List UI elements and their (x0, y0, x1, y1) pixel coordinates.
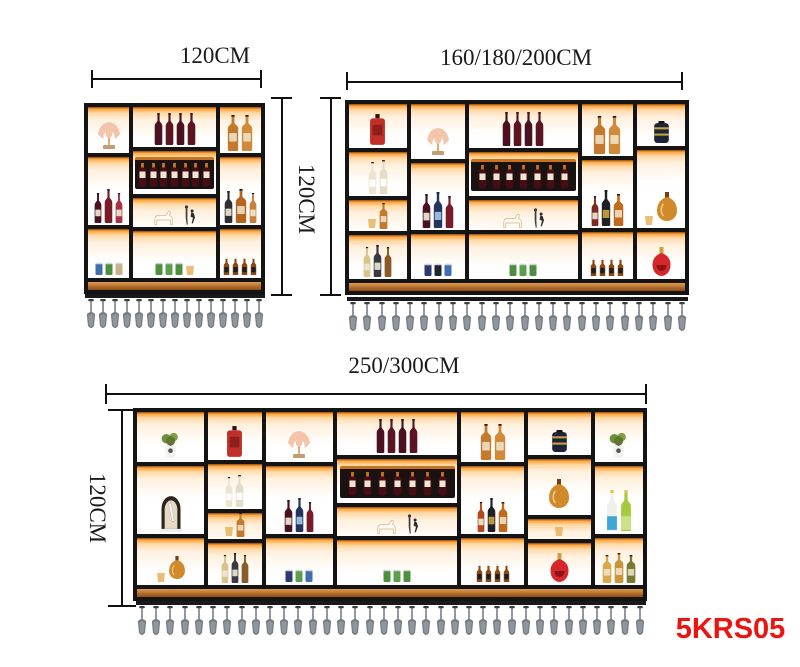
shelf-cell (637, 104, 685, 146)
wine-bottle-icon (115, 193, 123, 223)
wine-glass-icon (321, 606, 333, 644)
wine-glass-icon (361, 302, 373, 340)
wine-glass-icon (662, 302, 674, 340)
wine-bottle-icon (445, 196, 454, 228)
shelf-cell (469, 152, 578, 196)
wine-bottle-icon (513, 112, 522, 146)
shelf-cell (461, 538, 524, 585)
wine-glass-icon (477, 606, 489, 644)
wine-glass-icon (619, 606, 631, 644)
beer-bottle-icon (476, 564, 483, 583)
wine-glass-icon (217, 299, 229, 337)
red-decanter-icon (651, 247, 672, 277)
shelf-cell (411, 234, 465, 279)
shelf-cell (469, 200, 578, 230)
shelf-unit-160-180-200cm (345, 100, 689, 295)
wine-glass-icon (205, 299, 217, 337)
horse-figurine-icon (376, 516, 404, 534)
red-decanter-icon (549, 553, 570, 583)
wine-glass-icon (207, 606, 219, 644)
wine-bottle-icon (224, 191, 233, 223)
glass-cup-icon (156, 573, 166, 583)
people-figurines-icon (532, 208, 545, 228)
wine-bottle-icon (241, 555, 249, 583)
wine-glass-icon (404, 302, 416, 340)
rack-bottle-icon (159, 163, 168, 187)
brandy-bottle-icon (480, 424, 492, 460)
wine-bottle-icon (384, 247, 392, 277)
dome-display-icon (158, 494, 184, 532)
wine-bottle-icon (176, 113, 185, 145)
dimension-tick (681, 72, 683, 90)
wine-glass-icon (406, 606, 418, 644)
wine-glass-icon (634, 606, 646, 644)
wine-glass-icon (548, 606, 560, 644)
wine-bottle-icon (502, 112, 511, 146)
shelf-column (266, 412, 333, 585)
wine-glass-icon (164, 606, 176, 644)
rack-bottle-icon (492, 165, 501, 189)
shelf-cell (88, 229, 129, 278)
wine-glass-icon (676, 302, 688, 340)
wine-glass-icon (591, 606, 603, 644)
shelf-cell (220, 229, 261, 278)
rack-bottle-icon (138, 163, 147, 187)
shelf-cell (133, 107, 216, 147)
wine-glass-icon (605, 606, 617, 644)
wine-glass-icon (253, 299, 265, 337)
dimension-tick (105, 384, 107, 404)
shelf-cell (595, 466, 643, 535)
wood-base (137, 589, 643, 597)
people-figurines-icon (183, 205, 196, 225)
wine-glass-icon (433, 302, 445, 340)
rack-bottle-icon (363, 472, 372, 496)
wine-bottle-icon (422, 194, 431, 228)
shelf-cell (337, 412, 458, 455)
wine-bottle-icon (368, 162, 377, 194)
wine-glass-icon (461, 302, 473, 340)
shelf-column (469, 104, 578, 279)
wine-bottle-icon (373, 245, 382, 277)
brandy-bottle-icon (613, 194, 624, 226)
red-square-bottle-icon (369, 114, 386, 146)
beer-bottle-icon (250, 257, 257, 276)
can-icon (165, 262, 173, 276)
potted-plant-icon (607, 432, 630, 460)
shelf-cell (88, 107, 129, 153)
shelf-cell (208, 513, 261, 539)
canister-icon (551, 430, 568, 453)
shelf-cell (337, 540, 458, 585)
wine-glass-icon (364, 606, 376, 644)
wine-glass-icon (193, 606, 205, 644)
shelf-cell (411, 104, 465, 159)
wine-glass-icon (520, 606, 532, 644)
people-figurines-icon (406, 514, 419, 534)
shelf-cell (528, 459, 591, 515)
unit2-width-label: 160/180/200CM (431, 45, 601, 71)
wine-glass-icon (349, 606, 361, 644)
shelf-cell (349, 235, 407, 279)
wine-bottle-icon (387, 419, 396, 453)
wine-glass-icon (136, 606, 148, 644)
rack-bottle-icon (393, 472, 402, 496)
can-icon (105, 262, 113, 276)
coral-decor-icon (424, 127, 452, 157)
shelf-cell (528, 519, 591, 539)
wine-glass-icon (435, 606, 447, 644)
shelf-column (220, 107, 261, 278)
brandy-bottle-icon (614, 553, 624, 583)
dimension-cap (320, 294, 341, 296)
wine-glass-icon (590, 302, 602, 340)
can-icon (95, 262, 103, 276)
shelf-cell (337, 459, 458, 502)
rack-bottle-icon (378, 472, 387, 496)
rack-bottle-icon (191, 163, 200, 187)
wine-glass-icon (563, 606, 575, 644)
wine-glass-icon (506, 606, 518, 644)
wine-glass-icon (519, 302, 531, 340)
horse-figurine-icon (153, 207, 181, 225)
shelf-cell (88, 157, 129, 225)
can-icon (305, 569, 313, 583)
wine-glass-icon (193, 299, 205, 337)
brandy-bottle-icon (241, 115, 253, 151)
wine-glass-icon (420, 606, 432, 644)
wine-glass-icon (179, 606, 191, 644)
rack-bottle-icon (423, 472, 432, 496)
wine-glass-icon (547, 302, 559, 340)
shelf-cell (595, 412, 643, 462)
wine-glass-icon (390, 302, 402, 340)
unit3-height-label: 120CM (84, 454, 110, 562)
shelf-cell (208, 412, 261, 460)
rack-bottle-icon (181, 163, 190, 187)
hanging-glass-rack (85, 294, 265, 344)
wine-glass-icon (221, 606, 233, 644)
wine-glass-icon (121, 299, 133, 337)
wine-display-rack (340, 466, 455, 498)
wine-bottle-icon (94, 193, 102, 223)
wine-bottle-icon (433, 192, 443, 228)
coral-decor-icon (95, 121, 123, 151)
wine-glass-icon (250, 606, 262, 644)
brandy-bottle-icon (379, 203, 388, 229)
can-icon (529, 263, 537, 277)
beer-bottle-icon (608, 258, 615, 277)
wine-glass-icon (533, 302, 545, 340)
wine-glass-icon (97, 299, 109, 337)
shelf-cell (137, 412, 204, 462)
rack-bottle-icon (348, 472, 357, 496)
coral-decor-icon (285, 430, 313, 460)
wine-bottle-icon (231, 553, 239, 583)
can-icon (383, 569, 391, 583)
beer-bottle-icon (590, 258, 597, 277)
unit1-width-label: 120CM (150, 43, 280, 69)
wine-glass-icon (392, 606, 404, 644)
product-dimension-diagram: 120CM 160/180/200CM 120CM 250/300CM 120C… (0, 0, 800, 667)
dimension-line (92, 78, 262, 80)
wood-base (349, 283, 685, 291)
shelf-column (133, 107, 216, 278)
shelf-column (337, 412, 458, 585)
wine-bottle-icon (165, 113, 174, 145)
canister-icon (653, 121, 670, 144)
wine-bottle-icon (187, 113, 196, 145)
shelf-cell (595, 538, 643, 585)
product-code: 5KRS05 (668, 613, 793, 646)
can-icon (285, 569, 293, 583)
wine-bottle-icon (235, 475, 244, 507)
wine-glass-icon (633, 302, 645, 340)
shelf-cell (637, 150, 685, 228)
wine-glass-icon (109, 299, 121, 337)
wine-glass-icon (577, 606, 589, 644)
shelf-cell (133, 198, 216, 227)
horse-figurine-icon (502, 210, 530, 228)
shelf-column (88, 107, 129, 278)
shelf-unit-250-300cm (133, 408, 647, 601)
potted-plant-icon (159, 432, 182, 460)
rack-bottle-icon (202, 163, 211, 187)
wine-glass-icon (145, 299, 157, 337)
wine-glass-icon (447, 302, 459, 340)
glass-rail (347, 297, 688, 301)
shelf-column (208, 412, 261, 585)
shelf-cell (582, 160, 633, 228)
wine-glass-icon (504, 302, 516, 340)
wine-glass-icon (604, 302, 616, 340)
shelf-cell (461, 412, 524, 462)
shelf-cell (208, 464, 261, 509)
rack-bottle-icon (170, 163, 179, 187)
wine-glass-icon (476, 302, 488, 340)
wine-glass-icon (292, 606, 304, 644)
shelf-column (582, 104, 633, 279)
wine-glass-icon (619, 302, 631, 340)
wine-glass-icon (490, 302, 502, 340)
shelf-cell (582, 232, 633, 279)
beer-bottle-icon (617, 258, 624, 277)
dimension-tick (260, 70, 262, 88)
shelf-cell (469, 234, 578, 279)
glass-rail (136, 601, 646, 605)
glass-cup-icon (367, 219, 377, 229)
wine-bottle-icon (104, 189, 113, 223)
units-height-label: 120CM (293, 145, 319, 253)
hanging-glass-rack (347, 297, 688, 347)
dimension-cap (320, 97, 341, 99)
wine-bottle-icon (487, 498, 496, 532)
cognac-decanter-icon (548, 479, 570, 513)
wine-bottle-icon (524, 112, 533, 146)
beer-bottle-icon (241, 257, 248, 276)
glass-cup-icon (644, 216, 654, 226)
wine-glass-icon (449, 606, 461, 644)
dimension-cap (271, 294, 292, 296)
tall-bottle-icon (606, 490, 618, 532)
dimension-tick (346, 72, 348, 90)
wine-bottle-icon (225, 477, 233, 507)
shelf-cell (133, 231, 216, 278)
wine-glass-icon (378, 606, 390, 644)
shelf-cell (266, 412, 333, 462)
brandy-bottle-icon (593, 116, 606, 154)
shelf-cell (528, 412, 591, 455)
shelf-cell (337, 507, 458, 537)
rack-bottle-icon (149, 163, 158, 187)
unit2-height-line (330, 98, 332, 296)
dimension-cap (271, 97, 292, 99)
rack-bottle-icon (438, 472, 447, 496)
rack-bottle-icon (546, 165, 555, 189)
brandy-bottle-icon (626, 555, 636, 583)
wine-glass-icon (491, 606, 503, 644)
dimension-tick (645, 384, 647, 404)
wine-glass-icon (335, 606, 347, 644)
wine-glass-icon (150, 606, 162, 644)
tall-bottle-icon (620, 490, 632, 532)
shelf-grid (349, 104, 685, 279)
wine-glass-icon (133, 299, 145, 337)
shelf-cell (220, 107, 261, 153)
rack-bottle-icon (408, 472, 417, 496)
dimension-line (347, 81, 683, 83)
shelf-cell (637, 232, 685, 279)
rack-bottle-icon (533, 165, 542, 189)
can-icon (115, 262, 123, 276)
shelf-column (595, 412, 643, 585)
wine-glass-icon (169, 299, 181, 337)
wine-bottle-icon (379, 160, 388, 194)
shelf-cell (582, 104, 633, 156)
glass-cup-icon (185, 266, 195, 276)
wine-glass-icon (85, 299, 97, 337)
dimension-cap (108, 605, 136, 607)
unit1-height-line (281, 98, 283, 296)
wine-glass-icon (463, 606, 475, 644)
wine-glass-icon (561, 302, 573, 340)
glass-rail (85, 294, 265, 298)
wine-bottle-icon (601, 190, 611, 226)
wood-base (88, 282, 261, 290)
red-square-bottle-icon (226, 426, 243, 458)
shelf-cell (528, 543, 591, 585)
wine-glass-icon (647, 302, 659, 340)
brandy-bottle-icon (235, 189, 247, 223)
rack-bottle-icon (519, 165, 528, 189)
wine-bottle-icon (295, 498, 304, 532)
can-icon (424, 263, 432, 277)
wine-glass-icon (376, 302, 388, 340)
beer-bottle-icon (599, 258, 606, 277)
can-icon (393, 569, 401, 583)
dimension-tick (91, 70, 93, 88)
cognac-decanter-icon (656, 192, 678, 226)
wine-glass-icon (157, 299, 169, 337)
can-icon (444, 263, 452, 277)
shelf-cell (411, 163, 465, 229)
wine-glass-icon (576, 302, 588, 340)
wine-display-rack (135, 157, 215, 189)
can-icon (295, 569, 303, 583)
shelf-unit-120cm (84, 103, 265, 294)
wine-display-rack (471, 159, 575, 191)
shelf-cell (266, 466, 333, 535)
hanging-glass-rack (136, 601, 646, 653)
shelf-cell (461, 466, 524, 535)
shelf-grid (137, 412, 643, 585)
shelf-column (349, 104, 407, 279)
wine-glass-icon (181, 299, 193, 337)
cognac-decanter-icon (168, 556, 186, 583)
shelf-cell (266, 538, 333, 585)
shelf-column (528, 412, 591, 585)
wine-bottle-icon (249, 193, 257, 223)
wine-glass-icon (229, 299, 241, 337)
wine-bottle-icon (154, 113, 163, 145)
wine-glass-icon (278, 606, 290, 644)
beer-bottle-icon (232, 257, 239, 276)
wine-bottle-icon (477, 502, 485, 532)
wine-bottle-icon (363, 247, 371, 277)
can-icon (434, 263, 442, 277)
shelf-grid (88, 107, 261, 278)
wine-bottle-icon (535, 112, 544, 146)
can-icon (155, 262, 163, 276)
glass-cup-icon (224, 527, 234, 537)
can-icon (509, 263, 517, 277)
wine-glass-icon (418, 302, 430, 340)
brandy-bottle-icon (236, 513, 245, 537)
wine-glass-icon (241, 299, 253, 337)
beer-bottle-icon (223, 257, 230, 276)
beer-bottle-icon (494, 564, 501, 583)
shelf-cell (137, 466, 204, 535)
shelf-column (411, 104, 465, 279)
wine-glass-icon (236, 606, 248, 644)
brandy-bottle-icon (498, 502, 508, 532)
shelf-column (461, 412, 524, 585)
dimension-cap (108, 409, 136, 411)
shelf-cell (137, 538, 204, 585)
unit3-width-label: 250/300CM (324, 353, 484, 379)
brandy-bottle-icon (227, 115, 239, 151)
beer-bottle-icon (485, 564, 492, 583)
wine-bottle-icon (591, 196, 599, 226)
can-icon (175, 262, 183, 276)
brandy-bottle-icon (602, 555, 612, 583)
glass-cup-icon (554, 527, 564, 537)
brandy-bottle-icon (494, 424, 506, 460)
shelf-column (137, 412, 204, 585)
wine-bottle-icon (306, 502, 314, 532)
wine-glass-icon (347, 302, 359, 340)
dimension-line (106, 393, 647, 395)
brandy-bottle-icon (608, 116, 621, 154)
beer-bottle-icon (503, 564, 510, 583)
can-icon (403, 569, 411, 583)
shelf-cell (133, 151, 216, 194)
shelf-cell (349, 200, 407, 231)
shelf-cell (208, 543, 261, 585)
wine-bottle-icon (398, 419, 407, 453)
rack-bottle-icon (505, 165, 514, 189)
unit3-height-line (121, 410, 123, 607)
